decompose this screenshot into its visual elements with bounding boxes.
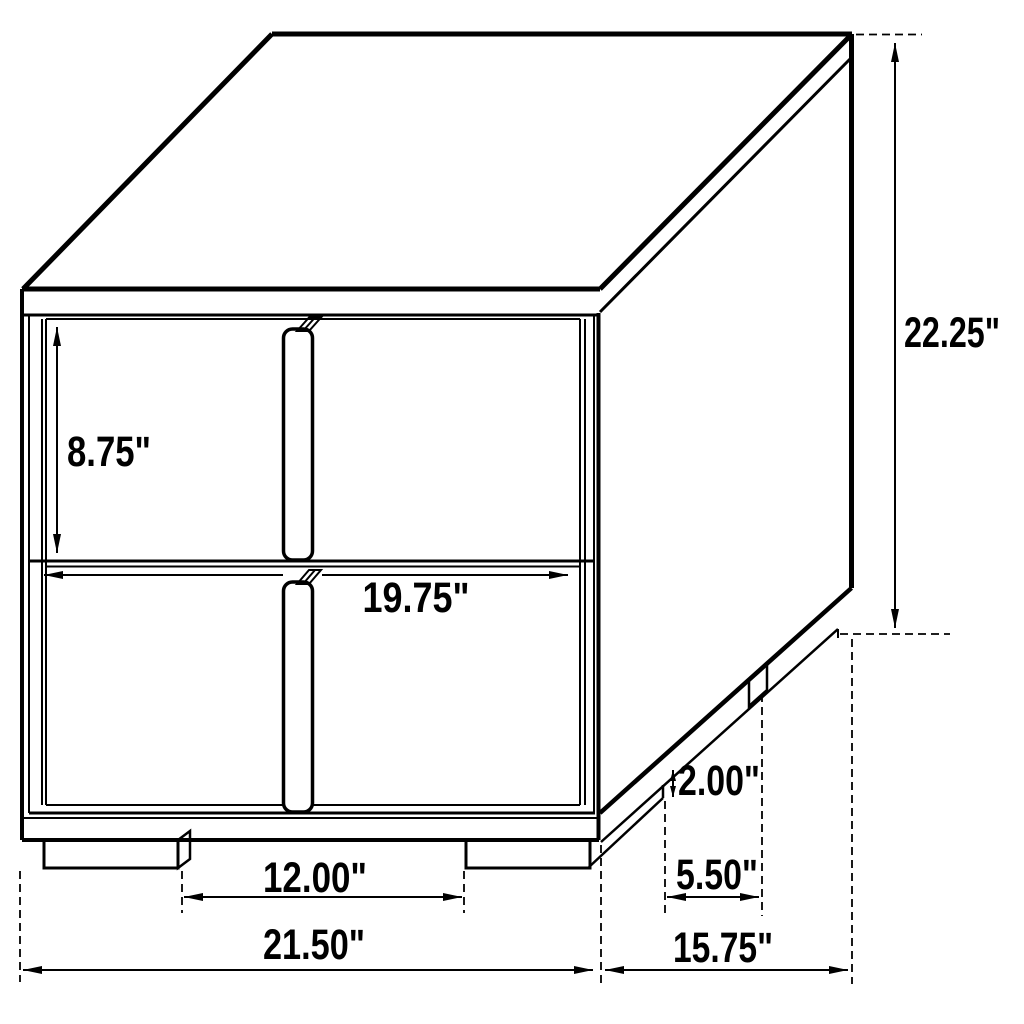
label-drawer-height: 8.75" xyxy=(67,428,151,476)
upper-drawer-handle xyxy=(284,329,313,560)
label-total-height: 22.25" xyxy=(904,309,1000,357)
label-total-depth: 15.75" xyxy=(673,924,773,972)
dimension-diagram: 8.75" 22.25" 19.75" 12.00" 21.50" 2.00" … xyxy=(0,0,1024,1024)
label-total-width: 21.50" xyxy=(263,921,365,969)
lower-drawer-handle xyxy=(284,582,313,812)
label-side-feet-gap: 5.50" xyxy=(676,851,758,899)
diagram-canvas: 8.75" 22.25" 19.75" 12.00" 21.50" 2.00" … xyxy=(0,0,1024,1024)
label-drawer-width: 19.75" xyxy=(363,574,470,622)
label-foot-height: 2.00" xyxy=(678,757,760,805)
label-front-feet-gap: 12.00" xyxy=(263,854,367,902)
